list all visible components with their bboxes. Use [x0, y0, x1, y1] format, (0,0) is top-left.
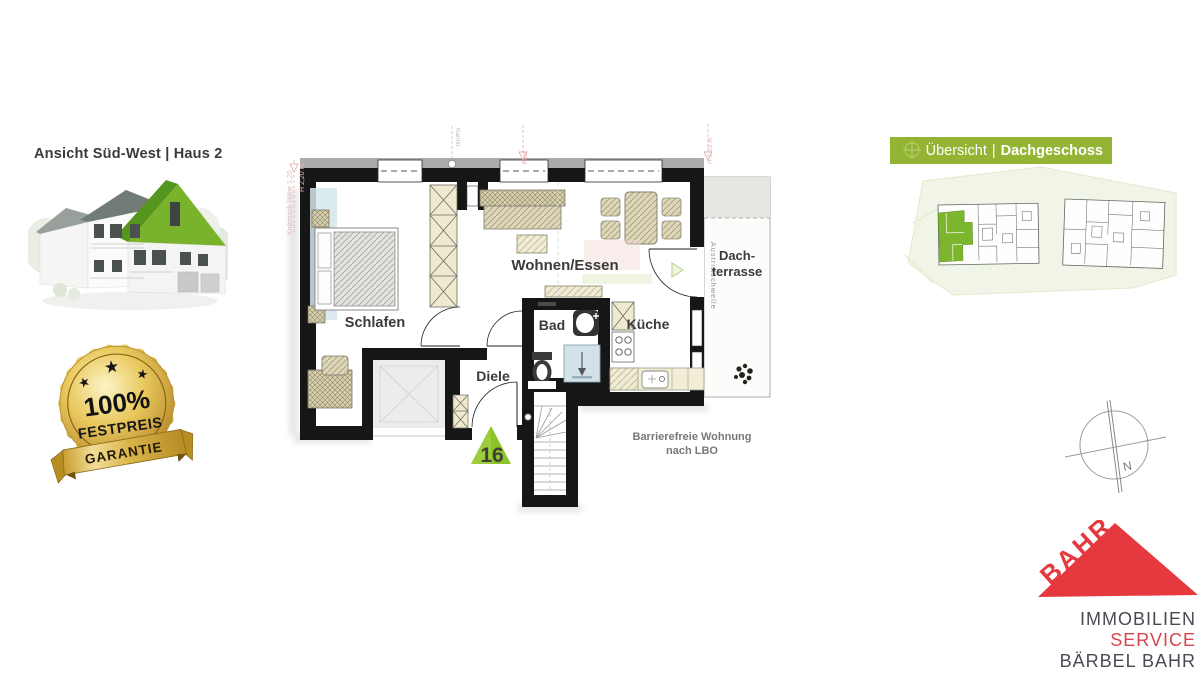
page: Ansicht Süd-West | Haus 2 [0, 0, 1200, 675]
label-terrace-1: Dach- [719, 248, 755, 263]
building-photo [28, 168, 228, 316]
stair-void [373, 360, 445, 436]
banner-title-bold: Dachgeschoss [1001, 143, 1103, 159]
floorplan: Kniestock Höhe 1,20 H 2,20 m First H 2,2… [280, 120, 790, 520]
logo-line-3: BÄRBEL BAHR [1060, 651, 1196, 670]
compass-north-label: N [1122, 458, 1133, 473]
annotation-ridge: First [522, 151, 529, 164]
badge-star-center: ★ [103, 356, 121, 378]
company-logo: BAHR IMMOBILIEN SERVICE BÄRBEL BAHR [1020, 520, 1200, 670]
wardrobe [430, 185, 457, 307]
view-title: Ansicht Süd-West | Haus 2 [34, 146, 222, 162]
garage-door-2 [201, 274, 219, 292]
banner-title-regular: Übersicht [926, 143, 987, 159]
overview-siteplan [893, 163, 1178, 303]
annotation-height-left: H 2,20 m [299, 163, 306, 192]
fixed-price-badge: ★ ★ ★ 100% FESTPREIS GARANTIE [42, 336, 194, 494]
compass: N [1062, 395, 1177, 500]
note-line-2: nach LBO [666, 445, 718, 457]
unit-number: 16 [480, 444, 503, 467]
label-terrace-2: terrasse [712, 264, 763, 279]
label-bath: Bad [539, 317, 565, 333]
ribbon-notch-right [177, 453, 187, 462]
overview-banner: Übersicht | Dachgeschoss [890, 137, 1112, 164]
hall-closet [453, 395, 468, 428]
label-kitchen: Küche [627, 316, 670, 332]
banner-separator: | [992, 143, 996, 159]
overview-building-right [1063, 199, 1165, 268]
label-hall: Diele [476, 368, 510, 384]
annotation-knee-wall: Kniestock Höhe 1,20 [287, 170, 294, 235]
bush-1 [53, 283, 67, 297]
bush-2 [68, 288, 80, 300]
overview-building-left [938, 203, 1039, 265]
logo-line-2: SERVICE [1110, 630, 1196, 650]
compass-icon [902, 140, 922, 160]
label-living: Wohnen/Essen [511, 257, 618, 274]
gable-window [170, 202, 180, 226]
logo-line-1: IMMOBILIEN [1080, 609, 1196, 629]
annotation-chimney: Kamin [454, 128, 461, 147]
entrance-marker: 16 [471, 426, 511, 467]
label-bedroom: Schlafen [345, 315, 405, 331]
bathroom-fixtures [528, 302, 600, 389]
note-line-1: Barrierefreie Wohnung [633, 431, 752, 443]
garage-door-1 [178, 272, 198, 292]
accessibility-note: Barrierefreie Wohnung nach LBO [633, 431, 752, 457]
annotation-height-right: H 2,20 m [707, 138, 714, 164]
